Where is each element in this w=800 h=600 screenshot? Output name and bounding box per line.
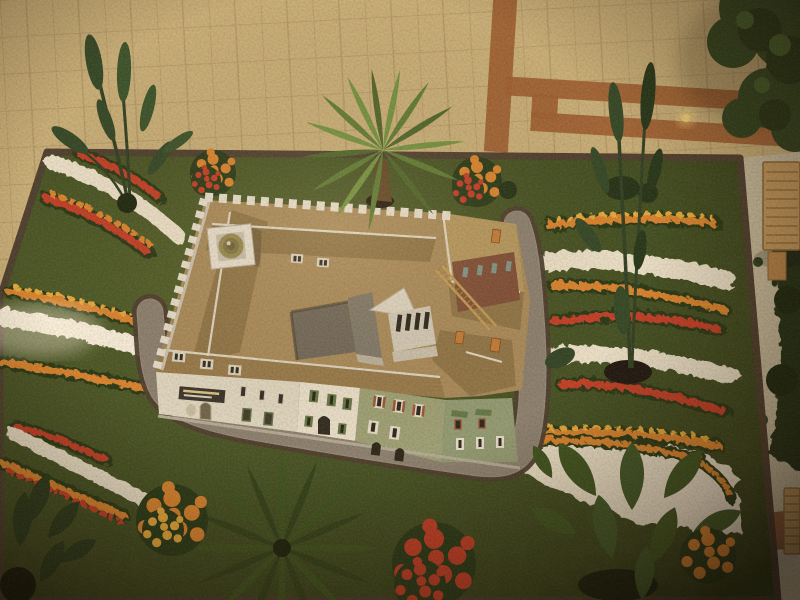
scene-canvas [0, 0, 800, 600]
vignette [0, 0, 800, 600]
photo-miniature-model-garden [0, 0, 800, 600]
lighting-overlays [0, 0, 800, 600]
